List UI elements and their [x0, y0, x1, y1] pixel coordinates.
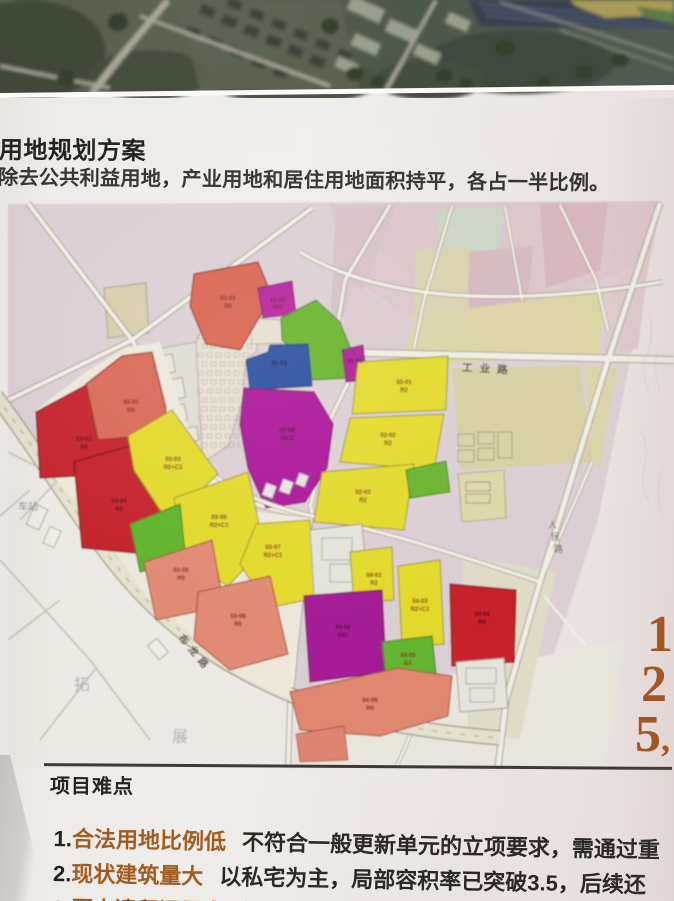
svg-text:R2: R2	[384, 441, 392, 447]
svg-text:R2+C1: R2+C1	[264, 553, 284, 559]
svg-text:03-05: 03-05	[211, 515, 227, 521]
svg-text:03-02: 03-02	[76, 437, 92, 443]
svg-text:GIC: GIC	[273, 305, 284, 311]
svg-text:04-03: 04-03	[412, 599, 428, 605]
svg-text:R0: R0	[234, 622, 242, 628]
svg-text:R0: R0	[115, 507, 123, 513]
svg-text:路: 路	[554, 543, 563, 554]
svg-text:02-01: 02-01	[396, 380, 412, 386]
svg-text:02-03: 02-03	[355, 490, 371, 496]
svg-text:R0: R0	[366, 706, 374, 712]
svg-text:01-01: 01-01	[220, 296, 236, 302]
svg-text:01-02: 01-02	[270, 298, 286, 304]
svg-text:R0: R0	[80, 445, 88, 451]
svg-text:展: 展	[172, 729, 188, 746]
svg-text:车站: 车站	[18, 500, 38, 513]
svg-text:02-04: 02-04	[279, 428, 295, 434]
svg-text:R0: R0	[224, 304, 232, 310]
svg-text:GIC2: GIC2	[280, 436, 295, 442]
svg-text:人: 人	[548, 520, 557, 530]
svg-text:03-04: 03-04	[111, 499, 127, 505]
svg-text:04-02: 04-02	[335, 625, 351, 631]
svg-text:03-01: 03-01	[123, 400, 139, 406]
svg-text:民: 民	[551, 532, 560, 542]
svg-text:拓: 拓	[74, 676, 90, 694]
svg-text:03-06: 03-06	[173, 568, 189, 574]
svg-text:R0: R0	[177, 576, 185, 582]
svg-text:GIC: GIC	[338, 633, 349, 639]
svg-text:04-01: 04-01	[366, 573, 382, 579]
svg-text:R0: R0	[478, 620, 486, 626]
svg-text:R2: R2	[359, 498, 367, 504]
svg-text:04-05: 04-05	[400, 653, 416, 659]
svg-text:03-07: 03-07	[265, 545, 281, 551]
svg-text:01-06: 01-06	[347, 359, 363, 365]
svg-text:工业路: 工业路	[462, 361, 515, 377]
svg-text:01-04: 01-04	[271, 361, 287, 367]
svg-text:R2+C1: R2+C1	[210, 523, 230, 529]
svg-text:R0: R0	[127, 408, 135, 414]
svg-text:G1: G1	[404, 661, 413, 667]
svg-text:04-04: 04-04	[474, 612, 490, 618]
svg-text:R2: R2	[370, 581, 378, 587]
svg-text:R2+C1: R2+C1	[164, 465, 184, 471]
svg-text:03-03: 03-03	[165, 457, 181, 463]
svg-text:04-06: 04-06	[362, 698, 378, 704]
svg-text:R2+C1: R2+C1	[411, 607, 431, 613]
svg-text:03-08: 03-08	[230, 614, 246, 620]
svg-text:R2: R2	[400, 388, 408, 394]
svg-text:02-02: 02-02	[380, 433, 396, 439]
